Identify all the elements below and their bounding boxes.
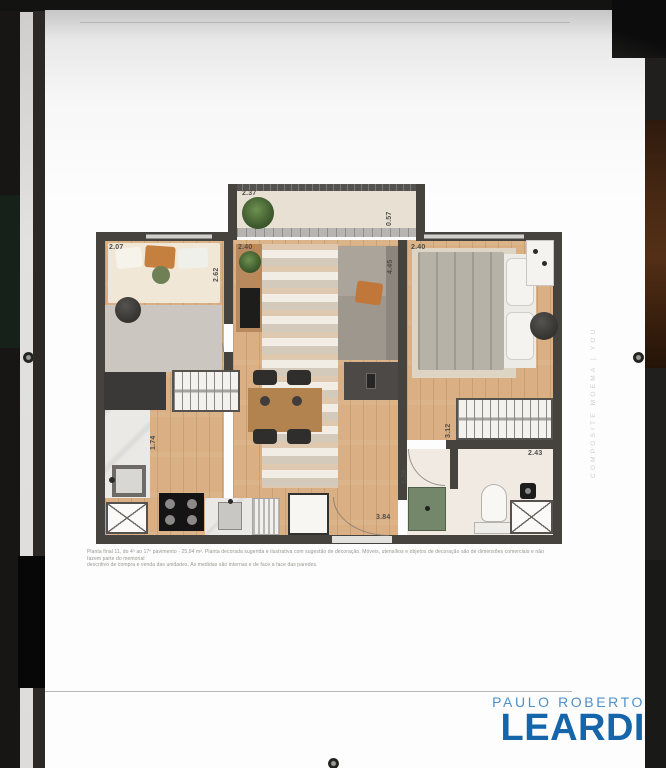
dining-chair [253, 429, 277, 444]
shower-box-icon [510, 500, 553, 534]
dim-kitchen-depth: 1.74 [150, 418, 157, 450]
pillow-white-right [177, 247, 208, 269]
wardrobe-hangers [456, 398, 553, 440]
tv-unit [344, 362, 398, 400]
dish-rack-icon [252, 498, 280, 535]
wall-right [553, 232, 562, 544]
dim-corridor-width: 3.84 [376, 514, 390, 521]
balcony-wall-left [228, 184, 237, 240]
balcony-railing [229, 184, 425, 191]
kitchen-dark-counter [104, 372, 166, 410]
dining-chair [253, 370, 277, 385]
tv-icon [366, 373, 376, 389]
dim-bedroom2-depth: 2.62 [213, 250, 220, 282]
dim-living-width: 2.40 [238, 244, 252, 251]
shower-head-icon [520, 483, 536, 499]
wall-bath-stub [450, 449, 458, 489]
dim-hall-depth: 1.24 [401, 454, 408, 484]
lamp-icon [533, 249, 538, 254]
disclaimer-line2: descritivo de compra e venda das unidade… [87, 562, 557, 569]
bottom-rule [45, 691, 572, 692]
dining-chair [287, 370, 311, 385]
wall-bedroom1-bath [446, 440, 553, 449]
closet-hangers [172, 370, 240, 412]
toilet-bowl [481, 484, 507, 522]
plan-disclaimer: Planta final 11, do 4º ao 17º pavimento … [87, 549, 557, 569]
right-maroon-patch [645, 120, 666, 368]
living-rug [262, 244, 338, 488]
leardi-logo: PAULO ROBERTO LEARDI [300, 694, 645, 746]
pillow [506, 312, 534, 360]
burner-icon [187, 499, 197, 509]
bedroom1-bed [418, 252, 536, 370]
wall-bottom [96, 535, 562, 544]
binder-post-left [23, 352, 34, 363]
brochure-photo: COMPOSITE MOEMA | YOU [0, 0, 666, 768]
binder-post-right [633, 352, 644, 363]
toilet-icon [474, 484, 514, 534]
page-top-gradient [45, 10, 645, 200]
washer-cabinet [288, 493, 329, 535]
faucet-icon [228, 499, 233, 504]
fridge-icon [106, 502, 148, 534]
bath-vanity-green [408, 487, 446, 531]
faucet-icon [425, 506, 430, 511]
faucet-icon [109, 477, 115, 483]
wall-bedroom2-living [224, 240, 233, 324]
dim-balcony-depth: 0.57 [386, 196, 393, 226]
kitchen-sink2 [218, 502, 242, 530]
toilet-tank [474, 522, 514, 534]
cooktop-icon [159, 493, 204, 531]
kitchen-sink-basin [116, 469, 142, 493]
dim-living-depth: 4.45 [387, 242, 394, 274]
bowl-icon [292, 396, 302, 406]
dim-closet-width: 3.12 [445, 406, 452, 438]
nightstand [526, 240, 554, 286]
dim-bedroom1-width: 2.40 [411, 244, 425, 251]
burner-icon [165, 499, 175, 509]
cushion-green [152, 266, 170, 284]
sofa-cushion-orange [355, 280, 384, 305]
left-black-patch [18, 556, 46, 688]
dining-table [248, 388, 322, 432]
lamp-icon [542, 261, 547, 266]
disclaimer-line1: Planta final 11, do 4º ao 17º pavimento … [87, 549, 557, 562]
burner-icon [187, 515, 197, 525]
vertical-watermark: COMPOSITE MOEMA | YOU [590, 238, 597, 478]
bedroom1-pouf [530, 312, 558, 340]
dim-bathroom-width: 2.43 [528, 450, 542, 457]
bedroom2-pouf [115, 297, 141, 323]
sliding-glass-door [237, 228, 416, 237]
binder-post-bottom [328, 758, 339, 768]
dim-balcony-width: 2.37 [242, 190, 256, 197]
bedroom1-window [424, 234, 524, 239]
kitchen-sink [112, 465, 146, 497]
bed-blanket [418, 252, 504, 370]
tv-board [240, 288, 260, 328]
plant-icon [242, 197, 274, 229]
bowl-icon [260, 396, 270, 406]
top-right-dark-corner [612, 0, 666, 58]
left-green-patch [0, 195, 20, 348]
top-rule [80, 22, 570, 23]
shower-knob [525, 488, 531, 494]
dining-chair [287, 429, 311, 444]
logo-name: LEARDI [300, 710, 645, 746]
burner-icon [165, 515, 175, 525]
floor-plan: 2.37 0.57 2.07 2.62 2.40 4.45 2.40 1.74 … [92, 180, 570, 550]
bedroom2-window [146, 234, 212, 239]
right-bottom-shadow [645, 560, 666, 768]
plant-icon [239, 251, 261, 273]
dim-bedroom2-width: 2.07 [109, 244, 123, 251]
entry-door [332, 536, 392, 543]
left-dark-edge [0, 0, 20, 768]
